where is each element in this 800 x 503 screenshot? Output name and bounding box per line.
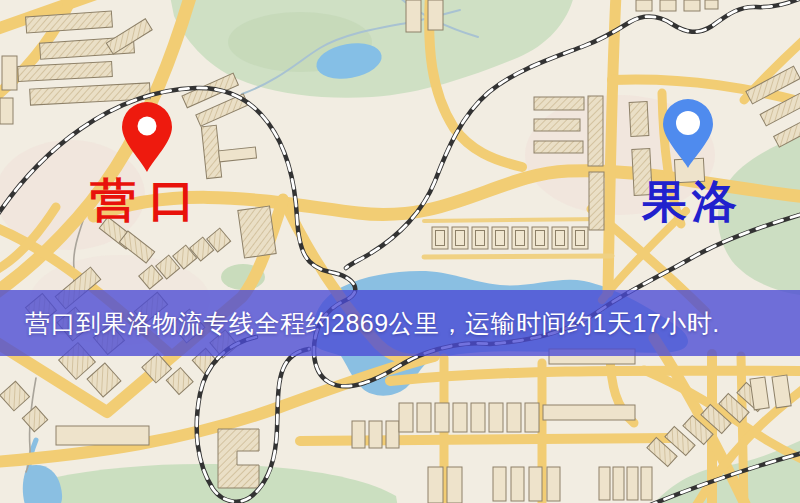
route-info-banner: 营口到果洛物流专线全程约2869公里，运输时间约1天17小时.	[0, 290, 800, 356]
origin-label: 营口	[90, 177, 208, 223]
logistics-route-map[interactable]: 营口 果洛 营口到果洛物流专线全程约2869公里，运输时间约1天17小时.	[0, 0, 800, 503]
map-canvas[interactable]	[0, 0, 800, 503]
destination-label: 果洛	[642, 179, 742, 224]
route-info-text: 营口到果洛物流专线全程约2869公里，运输时间约1天17小时.	[25, 307, 720, 340]
